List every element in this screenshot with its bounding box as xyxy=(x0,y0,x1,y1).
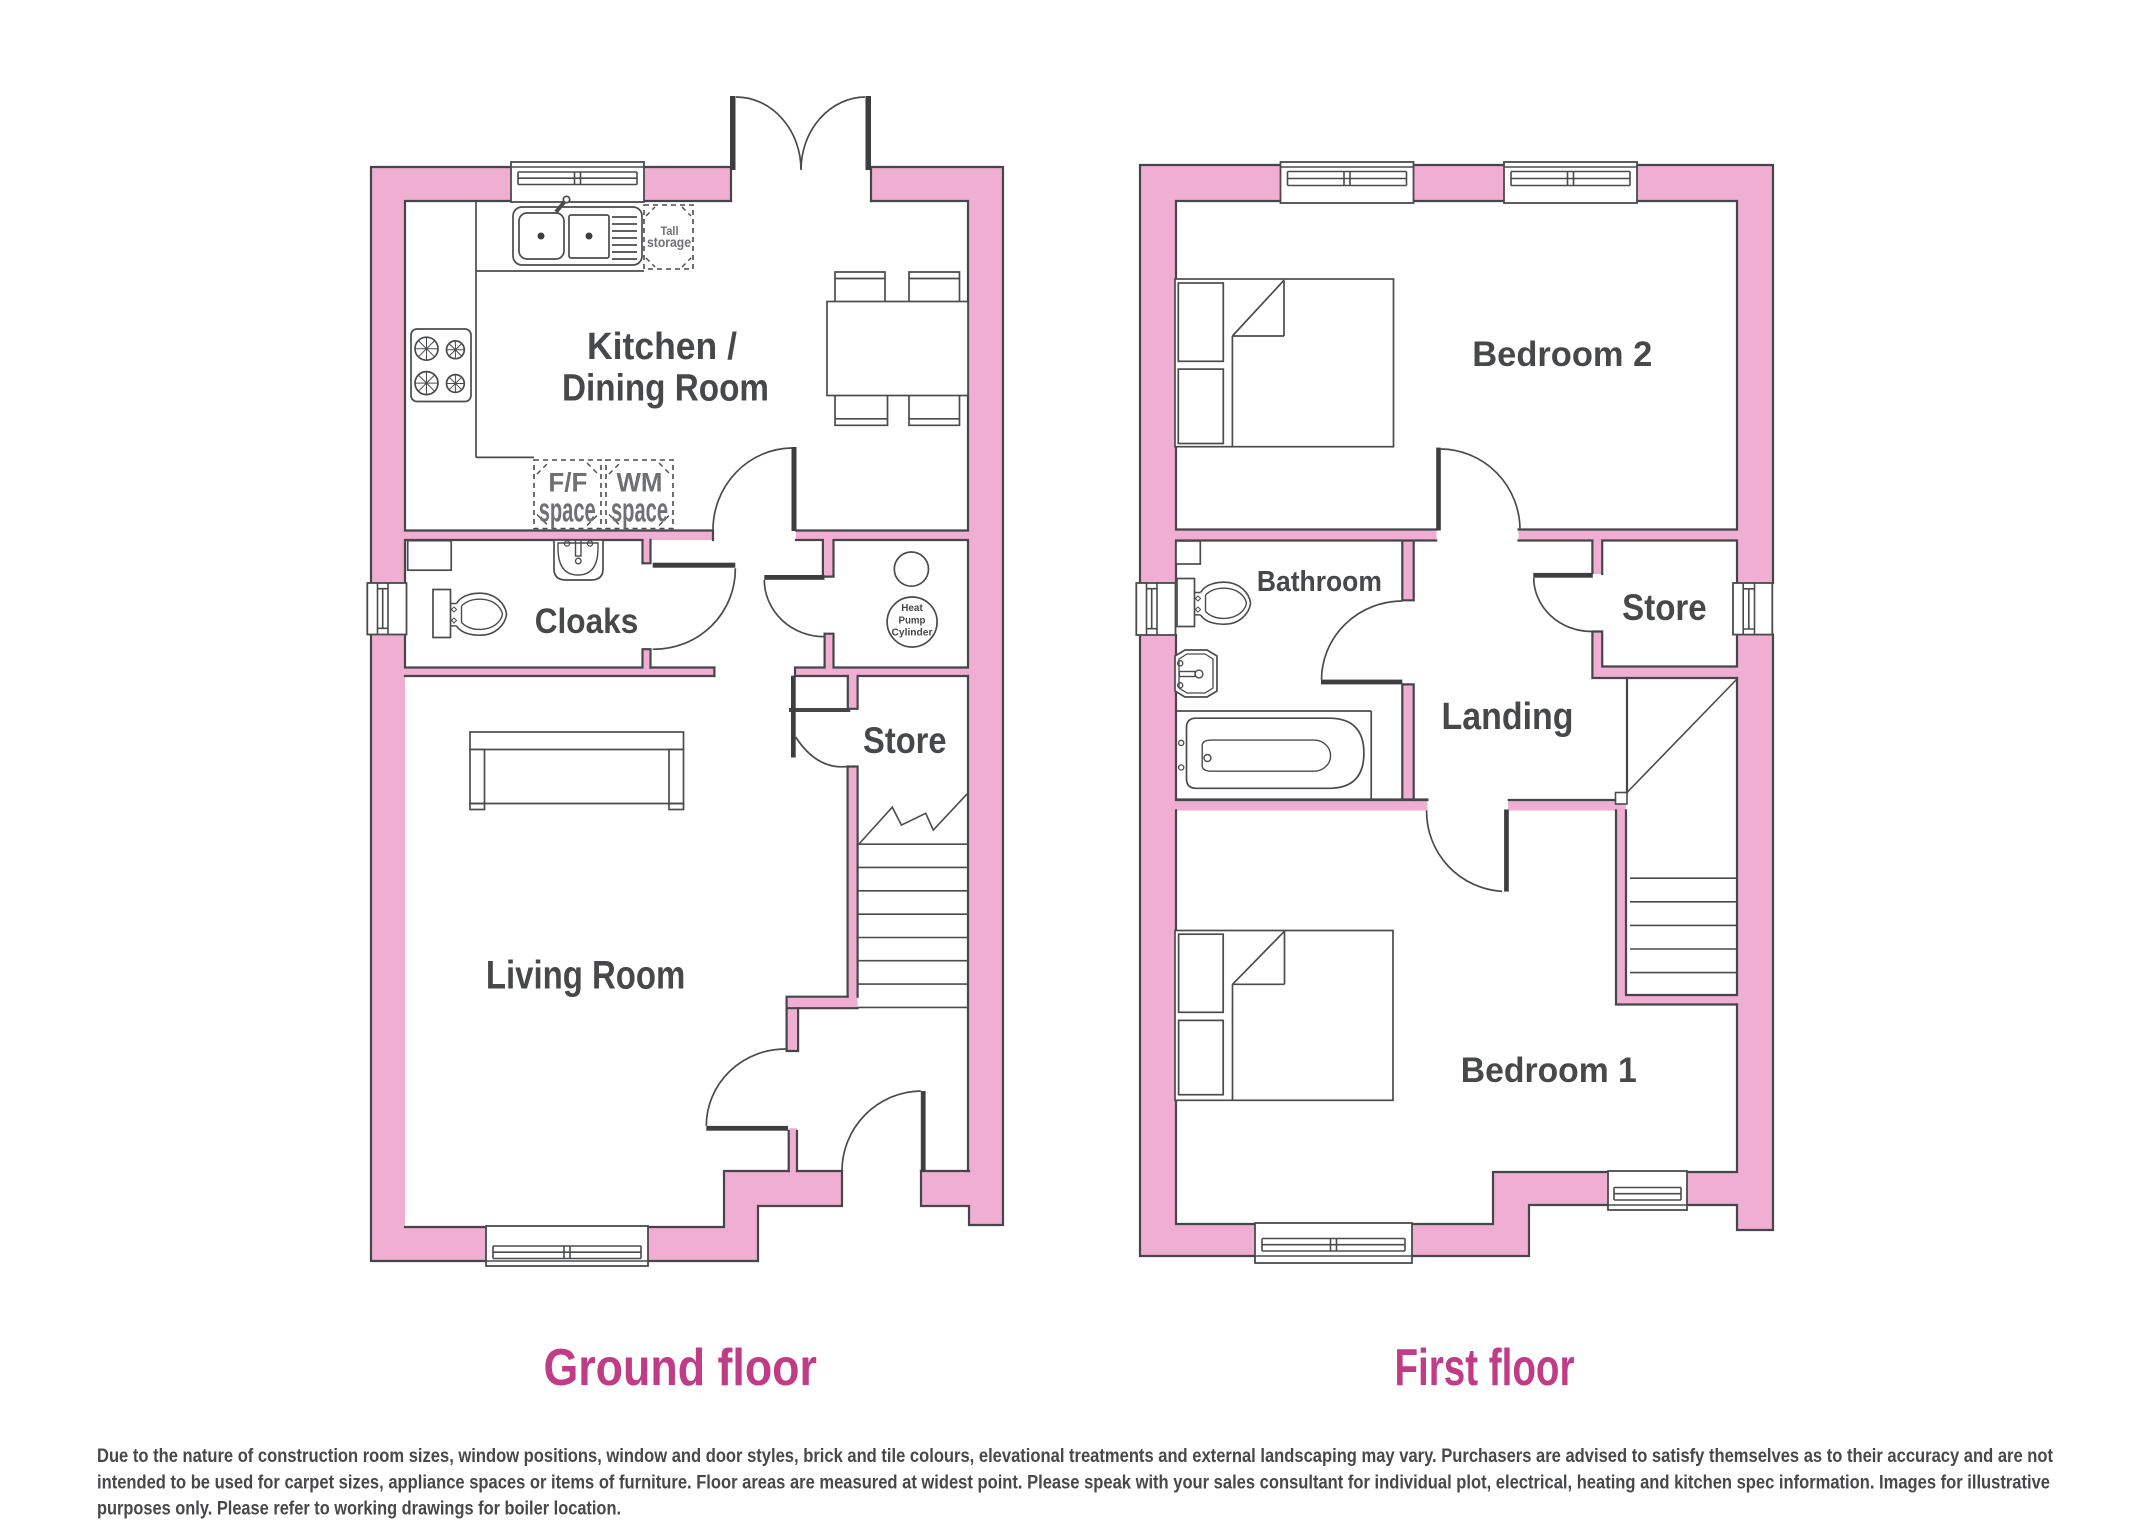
svg-text:Heat: Heat xyxy=(901,602,923,614)
svg-text:Cylinder: Cylinder xyxy=(892,626,933,638)
svg-text:intended to be used for carpet: intended to be used for carpet sizes, ap… xyxy=(97,1472,2050,1494)
svg-text:Store: Store xyxy=(1622,587,1707,628)
svg-text:Cloaks: Cloaks xyxy=(535,602,639,641)
svg-text:Bedroom 2: Bedroom 2 xyxy=(1472,335,1652,374)
svg-text:Dining Room: Dining Room xyxy=(562,368,769,410)
svg-text:Store: Store xyxy=(863,720,947,761)
svg-text:Bathroom: Bathroom xyxy=(1257,566,1382,598)
svg-text:space: space xyxy=(539,492,596,530)
svg-text:First floor: First floor xyxy=(1395,1339,1575,1397)
svg-text:Due to the nature of construct: Due to the nature of construction room s… xyxy=(97,1445,2053,1467)
svg-text:Ground floor: Ground floor xyxy=(543,1339,817,1397)
svg-text:Landing: Landing xyxy=(1442,696,1574,738)
svg-text:space: space xyxy=(611,492,668,530)
svg-text:storage: storage xyxy=(647,234,691,250)
svg-text:Bedroom 1: Bedroom 1 xyxy=(1461,1051,1637,1090)
svg-text:Living Room: Living Room xyxy=(486,953,686,997)
svg-text:Kitchen /: Kitchen / xyxy=(587,326,737,368)
svg-text:purposes only. Please refer to: purposes only. Please refer to working d… xyxy=(97,1498,621,1520)
svg-text:Pump: Pump xyxy=(899,615,926,627)
